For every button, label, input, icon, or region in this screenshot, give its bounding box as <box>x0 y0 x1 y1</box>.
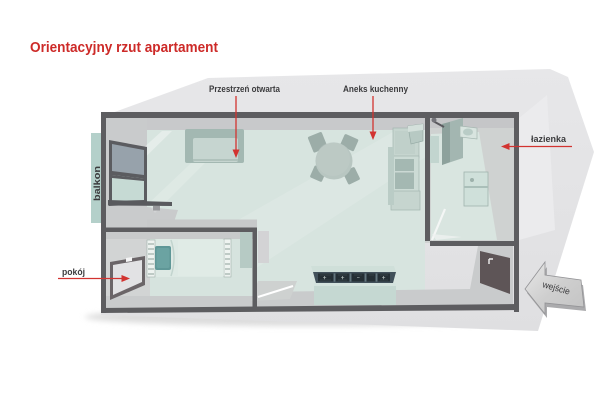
svg-text:pokój: pokój <box>62 267 85 278</box>
svg-text:łazienka: łazienka <box>531 134 567 145</box>
svg-text:Orientacyjny rzut apartament: Orientacyjny rzut apartament <box>30 40 218 56</box>
svg-text:Przestrzeń otwarta: Przestrzeń otwarta <box>209 84 281 95</box>
svg-text:balkon: balkon <box>92 166 102 201</box>
svg-text:Aneks kuchenny: Aneks kuchenny <box>343 84 409 95</box>
